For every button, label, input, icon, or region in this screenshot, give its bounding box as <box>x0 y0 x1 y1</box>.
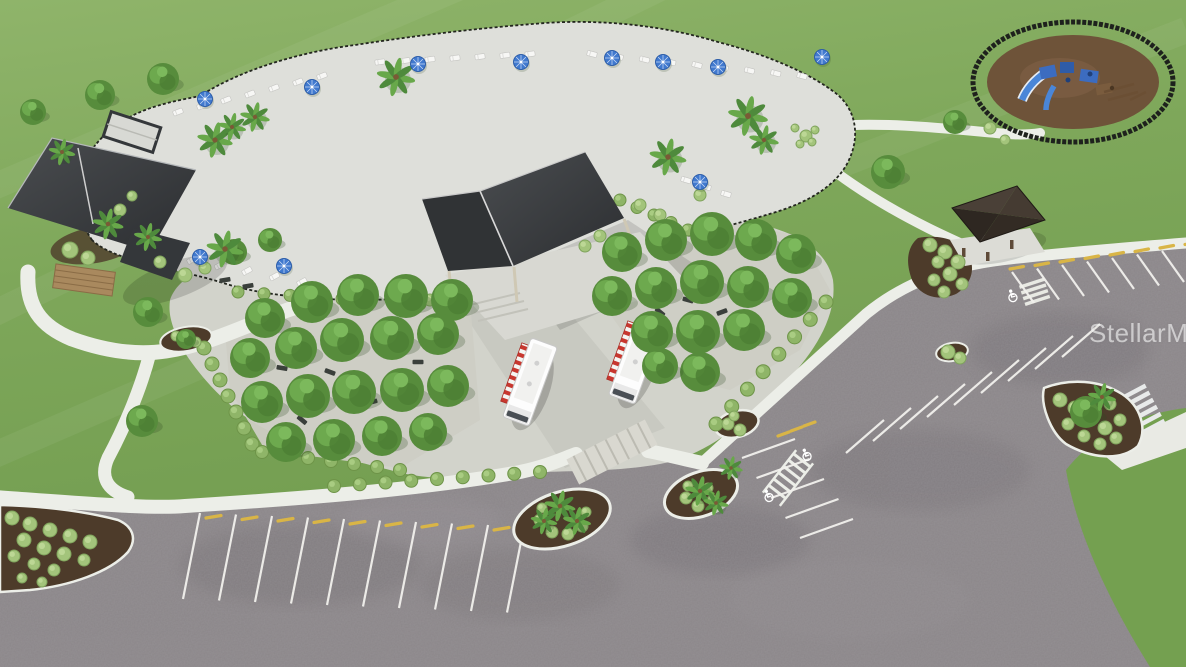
shrub-highlight <box>724 420 729 425</box>
hedge-shrub-highlight <box>257 447 263 453</box>
shrub-highlight <box>934 258 939 263</box>
tree-highlight <box>740 271 754 285</box>
tree-highlight <box>288 332 302 346</box>
shrub-icon <box>1053 393 1067 407</box>
shrub-icon <box>1114 414 1126 426</box>
palm-trunk <box>698 489 702 493</box>
hedge-shrub-highlight <box>239 423 245 429</box>
umbrella-pole-tip <box>699 181 702 184</box>
shrub-icon <box>729 411 739 421</box>
hedge-shrub-highlight <box>615 195 620 200</box>
palm-trunk <box>253 115 257 119</box>
shrub-highlight <box>736 426 741 431</box>
hedge-shrub-highlight <box>509 469 515 475</box>
shrub-icon <box>579 240 591 252</box>
hedge-shrub-highlight <box>484 471 490 477</box>
hedge-shrub-icon <box>258 288 270 300</box>
hedge-shrub-highlight <box>711 419 717 425</box>
hedge-shrub-highlight <box>774 349 780 355</box>
tree-highlight <box>94 83 104 93</box>
hedge-shrub-icon <box>371 461 384 474</box>
hedge-shrub-highlight <box>432 474 438 480</box>
tree-highlight <box>254 386 268 400</box>
lounge-chair <box>500 52 511 59</box>
shrub-highlight <box>636 201 641 206</box>
shrub-icon <box>63 529 77 543</box>
hedge-shrub-icon <box>456 471 469 484</box>
shrub-highlight <box>7 513 13 519</box>
shrub-highlight <box>792 125 796 129</box>
hedge-shrub-icon <box>353 478 366 491</box>
shrub-highlight <box>953 257 959 263</box>
shrub-icon <box>1094 438 1106 450</box>
tree-highlight <box>28 102 37 111</box>
shrub-highlight <box>10 552 15 557</box>
lounge-chair-body <box>475 53 486 60</box>
tree-highlight <box>398 279 413 294</box>
tree-highlight <box>694 265 709 280</box>
shrub-icon <box>127 191 137 201</box>
shrub-highlight <box>538 504 543 509</box>
umbrella-pole-tip <box>199 256 202 259</box>
lounge-chair-body <box>425 56 436 63</box>
umbrella-pole-tip <box>662 61 665 64</box>
umbrella-pole-tip <box>611 57 614 60</box>
shrub-icon <box>938 286 950 298</box>
hedge-shrub-highlight <box>758 367 764 373</box>
shrub-highlight <box>59 549 65 555</box>
shrub-icon <box>734 424 746 436</box>
umbrella-pole-tip <box>417 63 420 66</box>
hedge-shrub-icon <box>221 389 235 403</box>
shrub-highlight <box>596 232 601 237</box>
hedge-shrub-highlight <box>349 459 355 465</box>
shrub-highlight <box>19 535 25 541</box>
shrub-highlight <box>958 280 963 285</box>
palm-trunk <box>212 137 217 142</box>
hedge-shrub-highlight <box>207 359 213 365</box>
shrub-highlight <box>1080 432 1085 437</box>
lounge-chair <box>475 53 486 60</box>
shrub-highlight <box>172 332 177 337</box>
shrub-icon <box>811 126 819 134</box>
tree-highlight <box>374 420 387 433</box>
umbrella-pole-tip <box>311 86 314 89</box>
shrub-highlight <box>1116 416 1121 421</box>
hedge-shrub-icon <box>348 458 361 471</box>
shrub-highlight <box>1100 423 1106 429</box>
palm-trunk <box>60 150 64 154</box>
shrub-icon <box>923 238 937 252</box>
palm-trunk <box>745 113 751 119</box>
shrub-highlight <box>45 525 51 531</box>
shrub-icon <box>928 274 940 286</box>
shrub-highlight <box>30 560 35 565</box>
hedge-shrub-highlight <box>535 467 541 473</box>
umbrella-pole-tip <box>717 66 720 69</box>
shrub-icon <box>1110 432 1122 444</box>
shrub-highlight <box>50 566 55 571</box>
shrub-icon <box>78 554 90 566</box>
hedge-shrub-icon <box>232 286 244 298</box>
tree-highlight <box>1080 400 1091 411</box>
hedge-shrub-icon <box>819 295 833 309</box>
shrub-icon <box>932 256 944 268</box>
palm-trunk <box>230 125 234 129</box>
tree-highlight <box>788 238 801 251</box>
hedge-shrub-highlight <box>259 289 264 294</box>
shrub-highlight <box>156 258 161 263</box>
umbrella-pole-tip <box>821 56 824 59</box>
shrub-icon <box>1000 135 1010 145</box>
hedge-shrub-icon <box>431 473 444 486</box>
shrub-highlight <box>116 206 121 211</box>
tree-highlight <box>614 236 627 249</box>
shrub-icon <box>954 352 966 364</box>
tree-highlight <box>136 409 147 420</box>
shrub-icon <box>943 267 957 281</box>
tree-highlight <box>384 321 399 336</box>
lounge-chair <box>375 59 386 66</box>
hedge-shrub-highlight <box>231 407 237 413</box>
shrub-icon <box>791 124 799 132</box>
tree-highlight <box>157 67 168 78</box>
tree-highlight <box>257 302 270 315</box>
shrub-highlight <box>80 556 85 561</box>
hedge-shrub-highlight <box>458 472 464 478</box>
shrub-highlight <box>64 244 71 251</box>
tree-highlight <box>304 286 318 300</box>
hedge-shrub-highlight <box>355 479 361 485</box>
shrub-highlight <box>940 288 945 293</box>
shrub-highlight <box>83 253 89 259</box>
shrub-icon <box>951 255 965 269</box>
shrub-icon <box>5 511 19 525</box>
shrub-icon <box>62 242 78 258</box>
palm-trunk <box>558 504 563 509</box>
hedge-shrub-highlight <box>285 291 290 296</box>
shrub-highlight <box>940 247 946 253</box>
shrub-highlight <box>1064 420 1069 425</box>
hedge-shrub-icon <box>213 373 227 387</box>
shrub-icon <box>956 278 968 290</box>
shrub-highlight <box>797 141 801 145</box>
palm-trunk <box>762 138 766 142</box>
shrub-highlight <box>128 192 133 197</box>
shrub-highlight <box>581 242 586 247</box>
shrub-icon <box>796 140 804 148</box>
hedge-shrub-highlight <box>247 439 253 445</box>
palm-trunk <box>222 246 228 252</box>
lounge-chair <box>425 56 436 63</box>
hedge-shrub-icon <box>756 365 770 379</box>
shrub-highlight <box>582 508 587 513</box>
umbrella-pole-tip <box>204 98 207 101</box>
tree-highlight <box>440 370 454 384</box>
shrub-highlight <box>65 531 71 537</box>
tree-highlight <box>644 316 658 330</box>
shrub-icon <box>808 138 816 146</box>
shrub-icon <box>1078 430 1090 442</box>
bench <box>413 360 424 365</box>
shrub-icon <box>43 523 57 537</box>
shrub-highlight <box>1096 440 1101 445</box>
tree-highlight <box>265 231 273 239</box>
lounge-chair <box>450 55 461 62</box>
palm-trunk <box>1100 395 1104 399</box>
shrub-icon <box>48 564 60 576</box>
hedge-shrub <box>232 286 244 298</box>
lounge-chair-body <box>450 55 461 62</box>
tree-highlight <box>748 224 762 238</box>
shrub-icon <box>634 199 646 211</box>
tree-highlight <box>704 217 719 232</box>
tree-highlight <box>334 323 349 338</box>
hedge-shrub-highlight <box>742 384 748 390</box>
shrub-icon <box>114 204 126 216</box>
hedge-shrub-icon <box>205 357 219 371</box>
shrub-highlight <box>1055 395 1061 401</box>
palm-trunk <box>665 154 671 160</box>
shrub-highlight <box>1112 434 1117 439</box>
shrub-icon <box>57 547 71 561</box>
tree-highlight <box>653 352 665 364</box>
tree-highlight <box>882 159 893 170</box>
hedge-shrub-icon <box>788 330 802 344</box>
stellar-mls-watermark: StellarMLS <box>1089 318 1186 349</box>
shrub-highlight <box>809 139 813 143</box>
hedge-shrub-highlight <box>727 401 733 407</box>
shrub-icon <box>8 550 20 562</box>
shrub-highlight <box>945 269 951 275</box>
lounge-chair-body <box>375 59 386 66</box>
hedge-shrub-highlight <box>381 478 387 484</box>
tree-highlight <box>421 417 434 430</box>
shrub-icon <box>28 558 40 570</box>
hedge-shrub-icon <box>772 347 786 361</box>
tree-highlight <box>326 424 340 438</box>
shrub-icon <box>17 573 27 583</box>
shrub-icon <box>941 345 955 359</box>
tree-highlight <box>690 315 705 330</box>
tree-highlight <box>346 375 361 390</box>
hedge-shrub-icon <box>709 417 723 431</box>
shrub-icon <box>178 268 192 282</box>
hedge-shrub-icon <box>508 467 521 480</box>
tree-highlight <box>604 280 617 293</box>
shrub-highlight <box>925 240 931 246</box>
hedge-shrub <box>258 288 270 300</box>
tree-highlight <box>444 284 458 298</box>
hedge-shrub-icon <box>394 464 407 477</box>
tree-highlight <box>430 318 444 332</box>
hedge-shrub-icon <box>534 466 547 479</box>
tree-highlight <box>350 279 364 293</box>
hedge-shrub-icon <box>379 476 392 489</box>
tree-highlight <box>142 300 152 310</box>
hedge-shrub-highlight <box>406 476 412 482</box>
hedge-shrub-highlight <box>805 314 811 320</box>
palm-trunk <box>729 466 733 470</box>
shrub-icon <box>594 230 606 242</box>
tree-highlight <box>242 342 255 355</box>
shrub-icon <box>17 533 31 547</box>
shrub-highlight <box>682 494 687 499</box>
umbrella-pole-tip <box>283 265 286 268</box>
shrub-highlight <box>39 543 45 549</box>
shrub-highlight <box>180 270 186 276</box>
umbrella-pole-tip <box>520 61 523 64</box>
tree-highlight <box>278 426 291 439</box>
hedge-shrub-icon <box>229 405 243 419</box>
palm-trunk <box>575 519 579 523</box>
shrub-icon <box>23 517 37 531</box>
playground-tower-2 <box>1060 62 1074 73</box>
shrub-icon <box>984 122 996 134</box>
hedge-shrub-icon <box>237 421 251 435</box>
hedge-shrub-icon <box>803 312 817 326</box>
tree-highlight <box>784 282 797 295</box>
tree-highlight <box>658 224 672 238</box>
site-plan-rendering: StellarMLS <box>0 0 1186 667</box>
shrub-highlight <box>1001 136 1006 141</box>
hedge-shrub-icon <box>328 480 341 493</box>
shrub-highlight <box>656 211 661 216</box>
hedge-shrub-highlight <box>233 287 238 292</box>
rendering-canvas <box>0 0 1186 667</box>
hedge-shrub-icon <box>482 469 495 482</box>
tree-highlight <box>300 379 315 394</box>
shrub-highlight <box>956 354 961 359</box>
tree-highlight <box>182 331 189 338</box>
hedge-shrub-highlight <box>789 332 795 338</box>
shrub-highlight <box>812 127 816 131</box>
lounge-chair-body <box>500 52 511 59</box>
shrub-icon <box>37 541 51 555</box>
tree-highlight <box>692 356 705 369</box>
hedge-shrub-highlight <box>395 465 401 471</box>
shrub-highlight <box>564 530 569 535</box>
palm-trunk <box>146 235 150 239</box>
shrub-highlight <box>930 276 935 281</box>
tree-highlight <box>648 272 662 286</box>
hedge-shrub-icon <box>256 446 269 459</box>
tree-highlight <box>736 314 750 328</box>
hedge-shrub-highlight <box>329 481 335 487</box>
palm-trunk <box>542 519 546 523</box>
shrub-icon <box>81 251 95 265</box>
hedge-shrub-highlight <box>821 297 827 303</box>
hedge-shrub-highlight <box>215 375 221 381</box>
palm-trunk <box>714 501 718 505</box>
shrub-highlight <box>18 574 23 579</box>
shrub-highlight <box>802 132 807 137</box>
hedge-shrub-icon <box>740 382 754 396</box>
shrub-highlight <box>85 537 91 543</box>
tree-highlight <box>950 113 958 121</box>
shrub-highlight <box>684 482 689 487</box>
palm-trunk <box>393 74 399 80</box>
hedge-shrub-highlight <box>372 462 378 468</box>
shrub-highlight <box>986 124 991 129</box>
shrub-highlight <box>25 519 31 525</box>
hedge-shrub-highlight <box>223 391 229 397</box>
palm-trunk <box>106 222 111 227</box>
shrub-icon <box>37 577 47 587</box>
shrub-icon <box>154 256 166 268</box>
hedge-shrub-icon <box>405 474 418 487</box>
shrub-highlight <box>943 347 949 353</box>
shrub-highlight <box>730 412 735 417</box>
shrub-highlight <box>38 578 43 583</box>
shrub-icon <box>83 535 97 549</box>
tree-highlight <box>394 373 409 388</box>
